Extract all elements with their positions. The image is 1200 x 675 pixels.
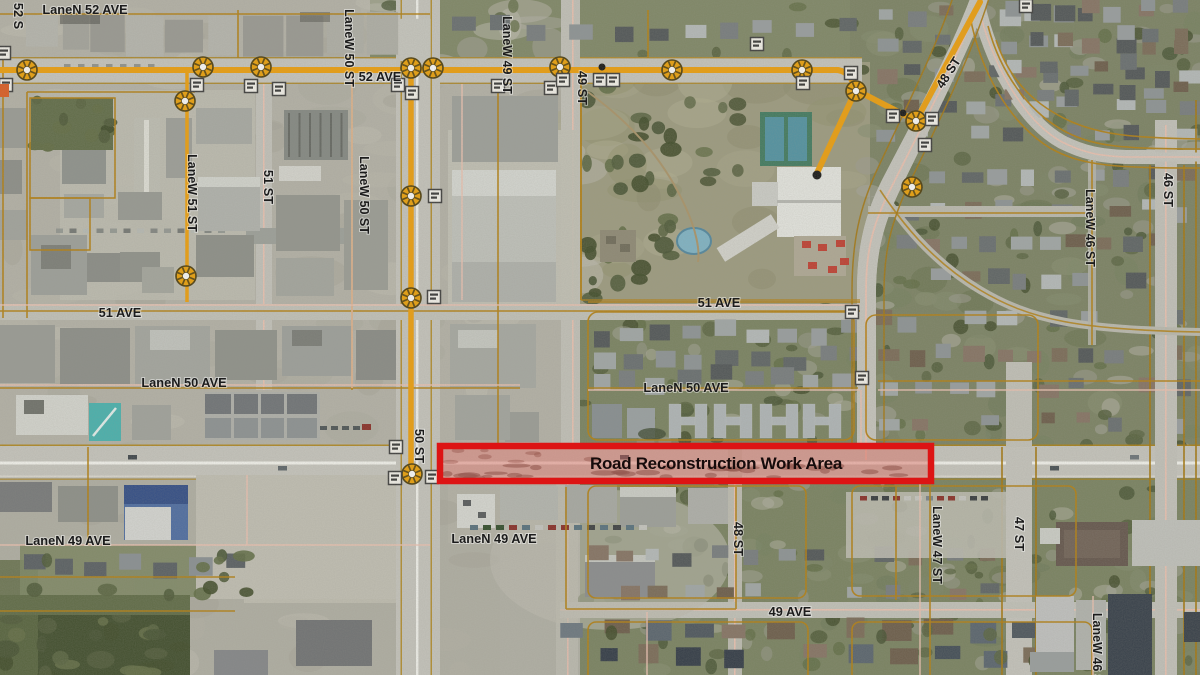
svg-text:52 S: 52 S xyxy=(11,3,26,30)
svg-text:51 AVE: 51 AVE xyxy=(698,295,741,310)
svg-text:LaneW 50 ST: LaneW 50 ST xyxy=(342,9,356,87)
svg-text:48 ST: 48 ST xyxy=(731,522,746,556)
svg-text:51 ST: 51 ST xyxy=(261,170,276,204)
svg-text:47 ST: 47 ST xyxy=(1012,517,1027,551)
svg-text:LaneN 49 AVE: LaneN 49 AVE xyxy=(25,533,111,548)
svg-text:LaneW 51 ST: LaneW 51 ST xyxy=(185,154,199,232)
svg-text:52 AVE: 52 AVE xyxy=(359,69,402,84)
svg-text:LaneW 46 S: LaneW 46 S xyxy=(1090,613,1104,675)
svg-text:LaneN 50 AVE: LaneN 50 AVE xyxy=(141,375,227,390)
svg-text:LaneN 49 AVE: LaneN 49 AVE xyxy=(451,531,537,546)
svg-text:51 AVE: 51 AVE xyxy=(99,305,142,320)
svg-text:50 ST: 50 ST xyxy=(412,429,427,463)
svg-text:LaneW 49 ST: LaneW 49 ST xyxy=(500,16,514,94)
svg-text:LaneW 50 ST: LaneW 50 ST xyxy=(357,156,371,234)
svg-text:LaneN 52 AVE: LaneN 52 AVE xyxy=(42,2,128,17)
svg-text:LaneW 47 ST: LaneW 47 ST xyxy=(930,506,944,584)
svg-text:46 ST: 46 ST xyxy=(1161,173,1176,207)
svg-text:49 ST: 49 ST xyxy=(575,71,590,105)
svg-text:LaneW 46 ST: LaneW 46 ST xyxy=(1083,189,1097,267)
svg-text:49 AVE: 49 AVE xyxy=(769,604,812,619)
svg-text:Road Reconstruction Work Area: Road Reconstruction Work Area xyxy=(590,454,843,473)
svg-text:LaneN 50 AVE: LaneN 50 AVE xyxy=(643,380,729,395)
